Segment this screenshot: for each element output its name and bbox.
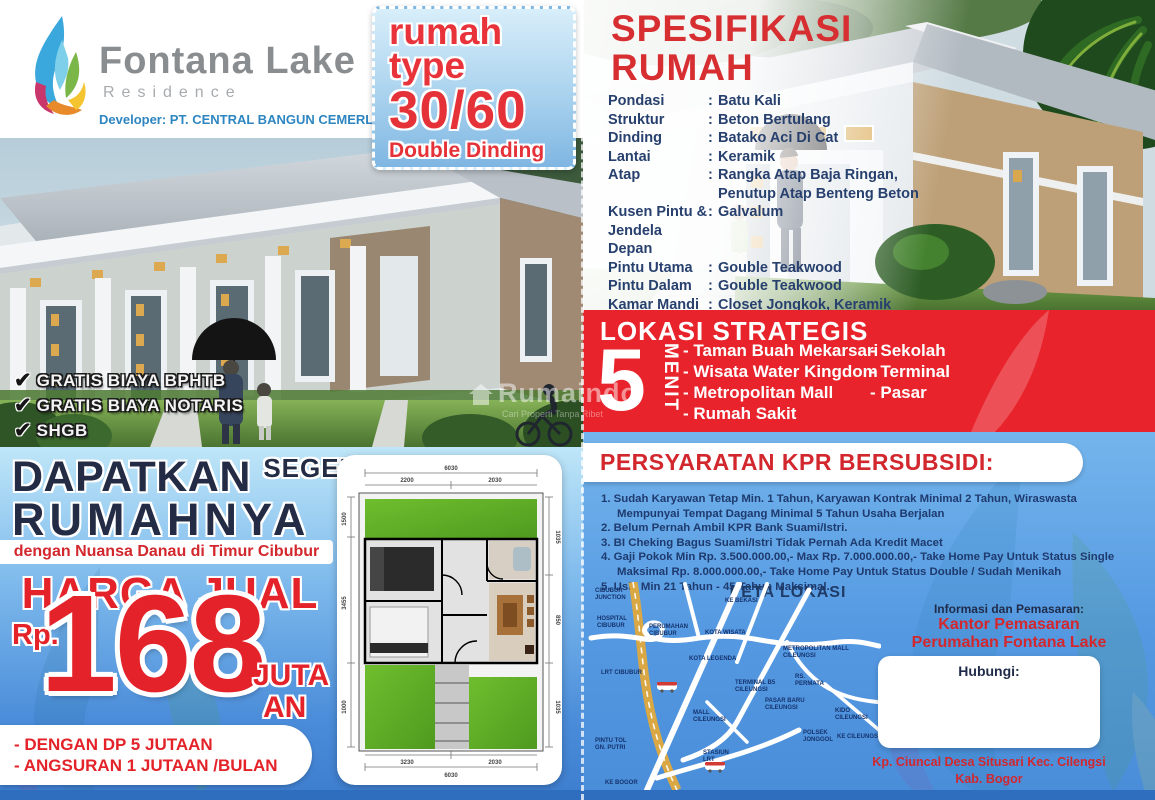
lrt-icon <box>657 682 677 693</box>
term-installment: - ANGSURAN 1 JUTAAN /BULAN <box>14 755 312 776</box>
kpr-title: PERSYARATAN KPR BERSUBSIDI: <box>600 449 994 476</box>
contact-address: Kp. Ciuncal Desa Situsari Kec. Cilengsi … <box>848 754 1130 788</box>
map-label: KE CILEUNGSI <box>837 734 880 741</box>
map-label: KOTA WISATA <box>705 630 746 637</box>
lrt-icon <box>705 762 725 773</box>
page-right: SPESIFIKASI RUMAH Pondasi:Batu Kali Stru… <box>583 0 1155 800</box>
badge-word-1: rumah <box>389 15 573 49</box>
map-label: MALL CILEUNGSI <box>693 710 726 723</box>
benefits-list: ✔ GRATIS BIAYA BPHTB ✔ GRATIS BIAYA NOTA… <box>14 368 243 443</box>
badge-size: 30/60 <box>389 83 573 139</box>
spec-row: Struktur:Beton Bertulang <box>608 111 928 130</box>
spec-row: Dinding:Batako Aci Di Cat <box>608 129 928 148</box>
map-label: CIBUBUR JUNCTION <box>595 588 626 601</box>
map-label: KOTA LEGENDA <box>689 656 736 663</box>
kpr-requirements-list: 1. Sudah Karyawan Tetap Min. 1 Tahun, Ka… <box>601 492 1131 594</box>
check-icon: ✔ <box>14 368 32 393</box>
dim-bottom-total: 6030 <box>444 773 458 779</box>
location-list-2: - Sekolah - Terminal - Pasar <box>870 341 950 404</box>
benefit-label: GRATIS BIAYA NOTARIS <box>37 396 244 416</box>
minutes-unit: MENIT <box>659 343 681 412</box>
kpr-title-pill: PERSYARATAN KPR BERSUBSIDI: <box>583 443 1083 482</box>
sail-decoration <box>961 310 1081 432</box>
fontana-flame-logo-icon <box>24 14 96 122</box>
dim-top-right: 2030 <box>488 478 502 484</box>
location-band: LOKASI STRATEGIS 5 MENIT - Taman Buah Me… <box>583 310 1155 432</box>
dim-top-left: 2200 <box>400 478 414 484</box>
spec-row: Pintu Dalam:Gouble Teakwood <box>608 277 928 296</box>
spec-row: Lantai:Keramik <box>608 148 928 167</box>
address-line-1: Kp. Ciuncal Desa Situsari Kec. Cilengsi <box>848 754 1130 771</box>
location-item: - Pasar <box>870 383 950 404</box>
brand-subtitle: Residence <box>103 84 242 102</box>
price-unit-bottom: AN <box>263 691 306 725</box>
badge-word-2: type <box>389 49 573 83</box>
contact-phone-box: Hubungi: <box>878 656 1100 748</box>
site-watermark: Rumaindo Cari Properti Tanpa Ribet <box>468 378 638 419</box>
flyer-root: Fontana Lake Residence Developer: PT. CE… <box>0 0 1155 800</box>
map-label: LRT CIBUBUR <box>601 670 642 677</box>
contact-info-label: Informasi dan Pemasaran: <box>878 602 1140 616</box>
watermark-tagline: Cari Properti Tanpa Ribet <box>502 409 638 419</box>
badge-note: Double Dinding <box>389 139 573 162</box>
spec-row: Pintu Utama:Gouble Teakwood <box>608 259 928 278</box>
floorplan-drawing: 6030 2200 2030 3230 2030 6030 1500 3455 … <box>337 455 562 785</box>
map-label: METROPOLITAN MALL CILEUNGSI <box>783 646 849 659</box>
location-map: CIBUBUR JUNCTION HOSPITAL CIBUBUR PERUMA… <box>587 582 881 790</box>
map-label: KE BEKASI <box>725 598 758 605</box>
dim-right-2: 850 <box>554 615 560 626</box>
kpr-section: PERSYARATAN KPR BERSUBSIDI: 1. Sudah Kar… <box>583 432 1155 790</box>
map-label: STASIUN LRT <box>703 750 729 763</box>
dim-bottom-right: 2030 <box>488 760 502 766</box>
kpr-item: 2. Belum Pernah Ambil KPR Bank Suami/Ist… <box>601 521 1131 536</box>
map-label: TERMINAL B5 CILEUNGSI <box>735 680 775 693</box>
dim-bottom-left: 3230 <box>400 760 414 766</box>
spec-row: Kusen Pintu & Jendela Depan:Galvalum <box>608 203 928 259</box>
kpr-item: 4. Gaji Pokok Min Rp. 3.500.000.00,- Max… <box>601 550 1131 579</box>
watermark-name: Rumaindo <box>468 378 638 409</box>
brand-name: Fontana Lake <box>99 40 356 83</box>
promo-headline-2: RUMAHNYA <box>12 494 310 546</box>
location-list-1: - Taman Buah Mekarsari - Wisata Water Ki… <box>683 341 878 425</box>
payment-terms: - DENGAN DP 5 JUTAAN - ANGSURAN 1 JUTAAN… <box>0 725 312 785</box>
benefit-row: ✔ GRATIS BIAYA NOTARIS <box>14 393 243 418</box>
location-item: - Taman Buah Mekarsari <box>683 341 878 362</box>
house-icon <box>468 382 494 406</box>
spec-row: Atap:Rangka Atap Baja Ringan, Penutup At… <box>608 166 928 203</box>
benefit-row: ✔ SHGB <box>14 418 243 443</box>
benefit-label: GRATIS BIAYA BPHTB <box>37 371 226 391</box>
kpr-item: 1. Sudah Karyawan Tetap Min. 1 Tahun, Ka… <box>601 492 1131 521</box>
location-item: - Wisata Water Kingdom <box>683 362 878 383</box>
check-icon: ✔ <box>14 393 32 418</box>
dim-right-1: 1035 <box>554 530 560 544</box>
bottom-strip <box>0 790 1155 800</box>
map-roads <box>587 582 881 790</box>
floorplan-panel: 6030 2200 2030 3230 2030 6030 1500 3455 … <box>337 455 562 785</box>
spec-title: SPESIFIKASI RUMAH <box>611 10 852 88</box>
contact-block: Informasi dan Pemasaran: Kantor Pemasara… <box>878 602 1140 651</box>
contact-office-1: Kantor Pemasaran <box>878 616 1140 634</box>
map-label: PINTU TOL GN. PUTRI <box>595 738 627 751</box>
price-amount: 168 <box>40 575 264 713</box>
dim-top-total: 6030 <box>444 466 458 472</box>
location-item: - Terminal <box>870 362 950 383</box>
dim-left-2: 3455 <box>342 596 348 610</box>
promo-tagline: dengan Nuansa Danau di Timur Cibubur <box>14 543 320 561</box>
map-label: POLSEK JONGGOL <box>803 730 833 743</box>
benefit-row: ✔ GRATIS BIAYA BPHTB <box>14 368 243 393</box>
spec-table: Pondasi:Batu Kali Struktur:Beton Bertula… <box>608 92 928 310</box>
check-icon: ✔ <box>14 418 32 443</box>
kpr-item: 3. BI Cheking Bagus Suami/Istri Tidak Pe… <box>601 536 1131 551</box>
contact-office-2: Perumahan Fontana Lake <box>878 634 1140 652</box>
map-label: KIDO CILEUNGSI <box>835 708 868 721</box>
promo-section: DAPATKAN SEGERA RUMAHNYA dengan Nuansa D… <box>0 447 583 790</box>
promo-tagline-bar: dengan Nuansa Danau di Timur Cibubur <box>0 540 333 564</box>
location-item: - Rumah Sakit <box>683 404 878 425</box>
house-type-badge: rumah type 30/60 Double Dinding <box>372 6 576 170</box>
spec-row: Kamar Mandi:Closet Jongkok, Keramik <box>608 296 928 310</box>
brand-developer: Developer: PT. CENTRAL BANGUN CEMERLANG <box>99 112 402 127</box>
map-label: PASAR BARU CILEUNGSI <box>765 698 805 711</box>
location-item: - Sekolah <box>870 341 950 362</box>
house-photo: SPESIFIKASI RUMAH Pondasi:Batu Kali Stru… <box>583 0 1155 310</box>
dim-left-1: 1500 <box>342 512 348 526</box>
term-dp: - DENGAN DP 5 JUTAAN <box>14 734 312 755</box>
map-label: RS. PERMATA <box>795 674 824 687</box>
benefit-label: SHGB <box>37 421 88 441</box>
dim-right-3: 1035 <box>554 700 560 714</box>
address-line-2: Kab. Bogor <box>848 771 1130 788</box>
spec-row: Pondasi:Batu Kali <box>608 92 928 111</box>
page-divider <box>581 0 584 800</box>
price-unit-top: JUTA <box>253 659 329 693</box>
map-label: PERUMAHAN CIBUBUR <box>649 624 688 637</box>
dim-left-3: 1000 <box>342 700 348 714</box>
map-label: HOSPITAL CIBUBUR <box>597 616 627 629</box>
contact-label: Hubungi: <box>878 663 1100 679</box>
location-item: - Metropolitan Mall <box>683 383 878 404</box>
map-label: KE BOGOR <box>605 780 638 787</box>
